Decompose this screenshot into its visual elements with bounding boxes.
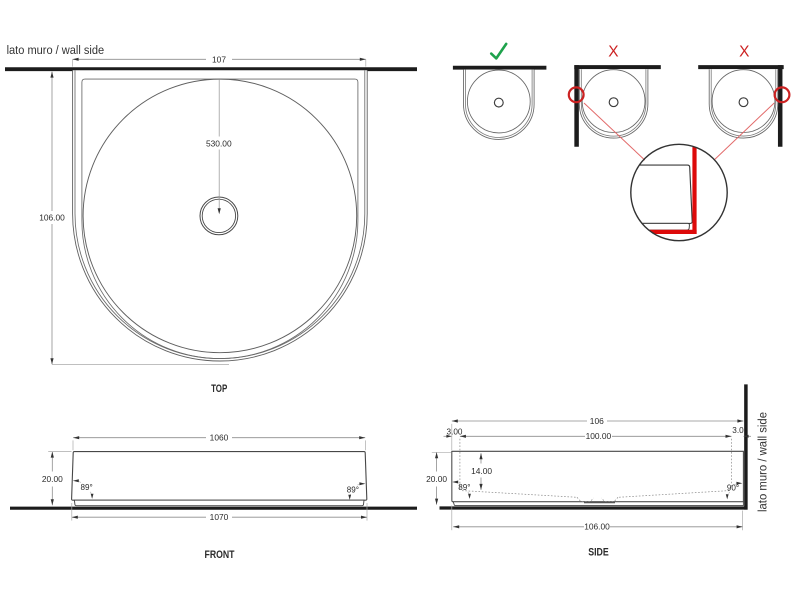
svg-text:89°: 89° bbox=[458, 483, 470, 492]
svg-text:530.00: 530.00 bbox=[206, 138, 232, 148]
svg-text:FRONT: FRONT bbox=[205, 549, 235, 561]
svg-text:lato muro / wall side: lato muro / wall side bbox=[7, 43, 105, 57]
svg-text:106.00: 106.00 bbox=[39, 212, 65, 222]
svg-text:106: 106 bbox=[590, 416, 604, 426]
svg-text:1070: 1070 bbox=[210, 512, 229, 522]
svg-text:lato muro / wall side: lato muro / wall side bbox=[756, 412, 770, 512]
svg-text:100.00: 100.00 bbox=[586, 431, 612, 441]
svg-text:89°: 89° bbox=[347, 485, 359, 494]
svg-text:20.00: 20.00 bbox=[426, 474, 447, 484]
svg-text:107: 107 bbox=[212, 54, 226, 64]
svg-text:1060: 1060 bbox=[210, 433, 229, 443]
svg-text:X: X bbox=[608, 44, 619, 61]
svg-text:TOP: TOP bbox=[211, 383, 227, 395]
svg-text:14.00: 14.00 bbox=[471, 466, 492, 476]
svg-text:3.00: 3.00 bbox=[447, 427, 463, 436]
svg-text:SIDE: SIDE bbox=[588, 547, 609, 559]
svg-text:90°: 90° bbox=[727, 483, 739, 492]
svg-text:3.0: 3.0 bbox=[732, 426, 744, 435]
svg-text:X: X bbox=[739, 44, 750, 61]
svg-text:20.00: 20.00 bbox=[42, 474, 63, 484]
svg-text:106.00: 106.00 bbox=[584, 521, 610, 531]
svg-text:89°: 89° bbox=[80, 483, 92, 492]
